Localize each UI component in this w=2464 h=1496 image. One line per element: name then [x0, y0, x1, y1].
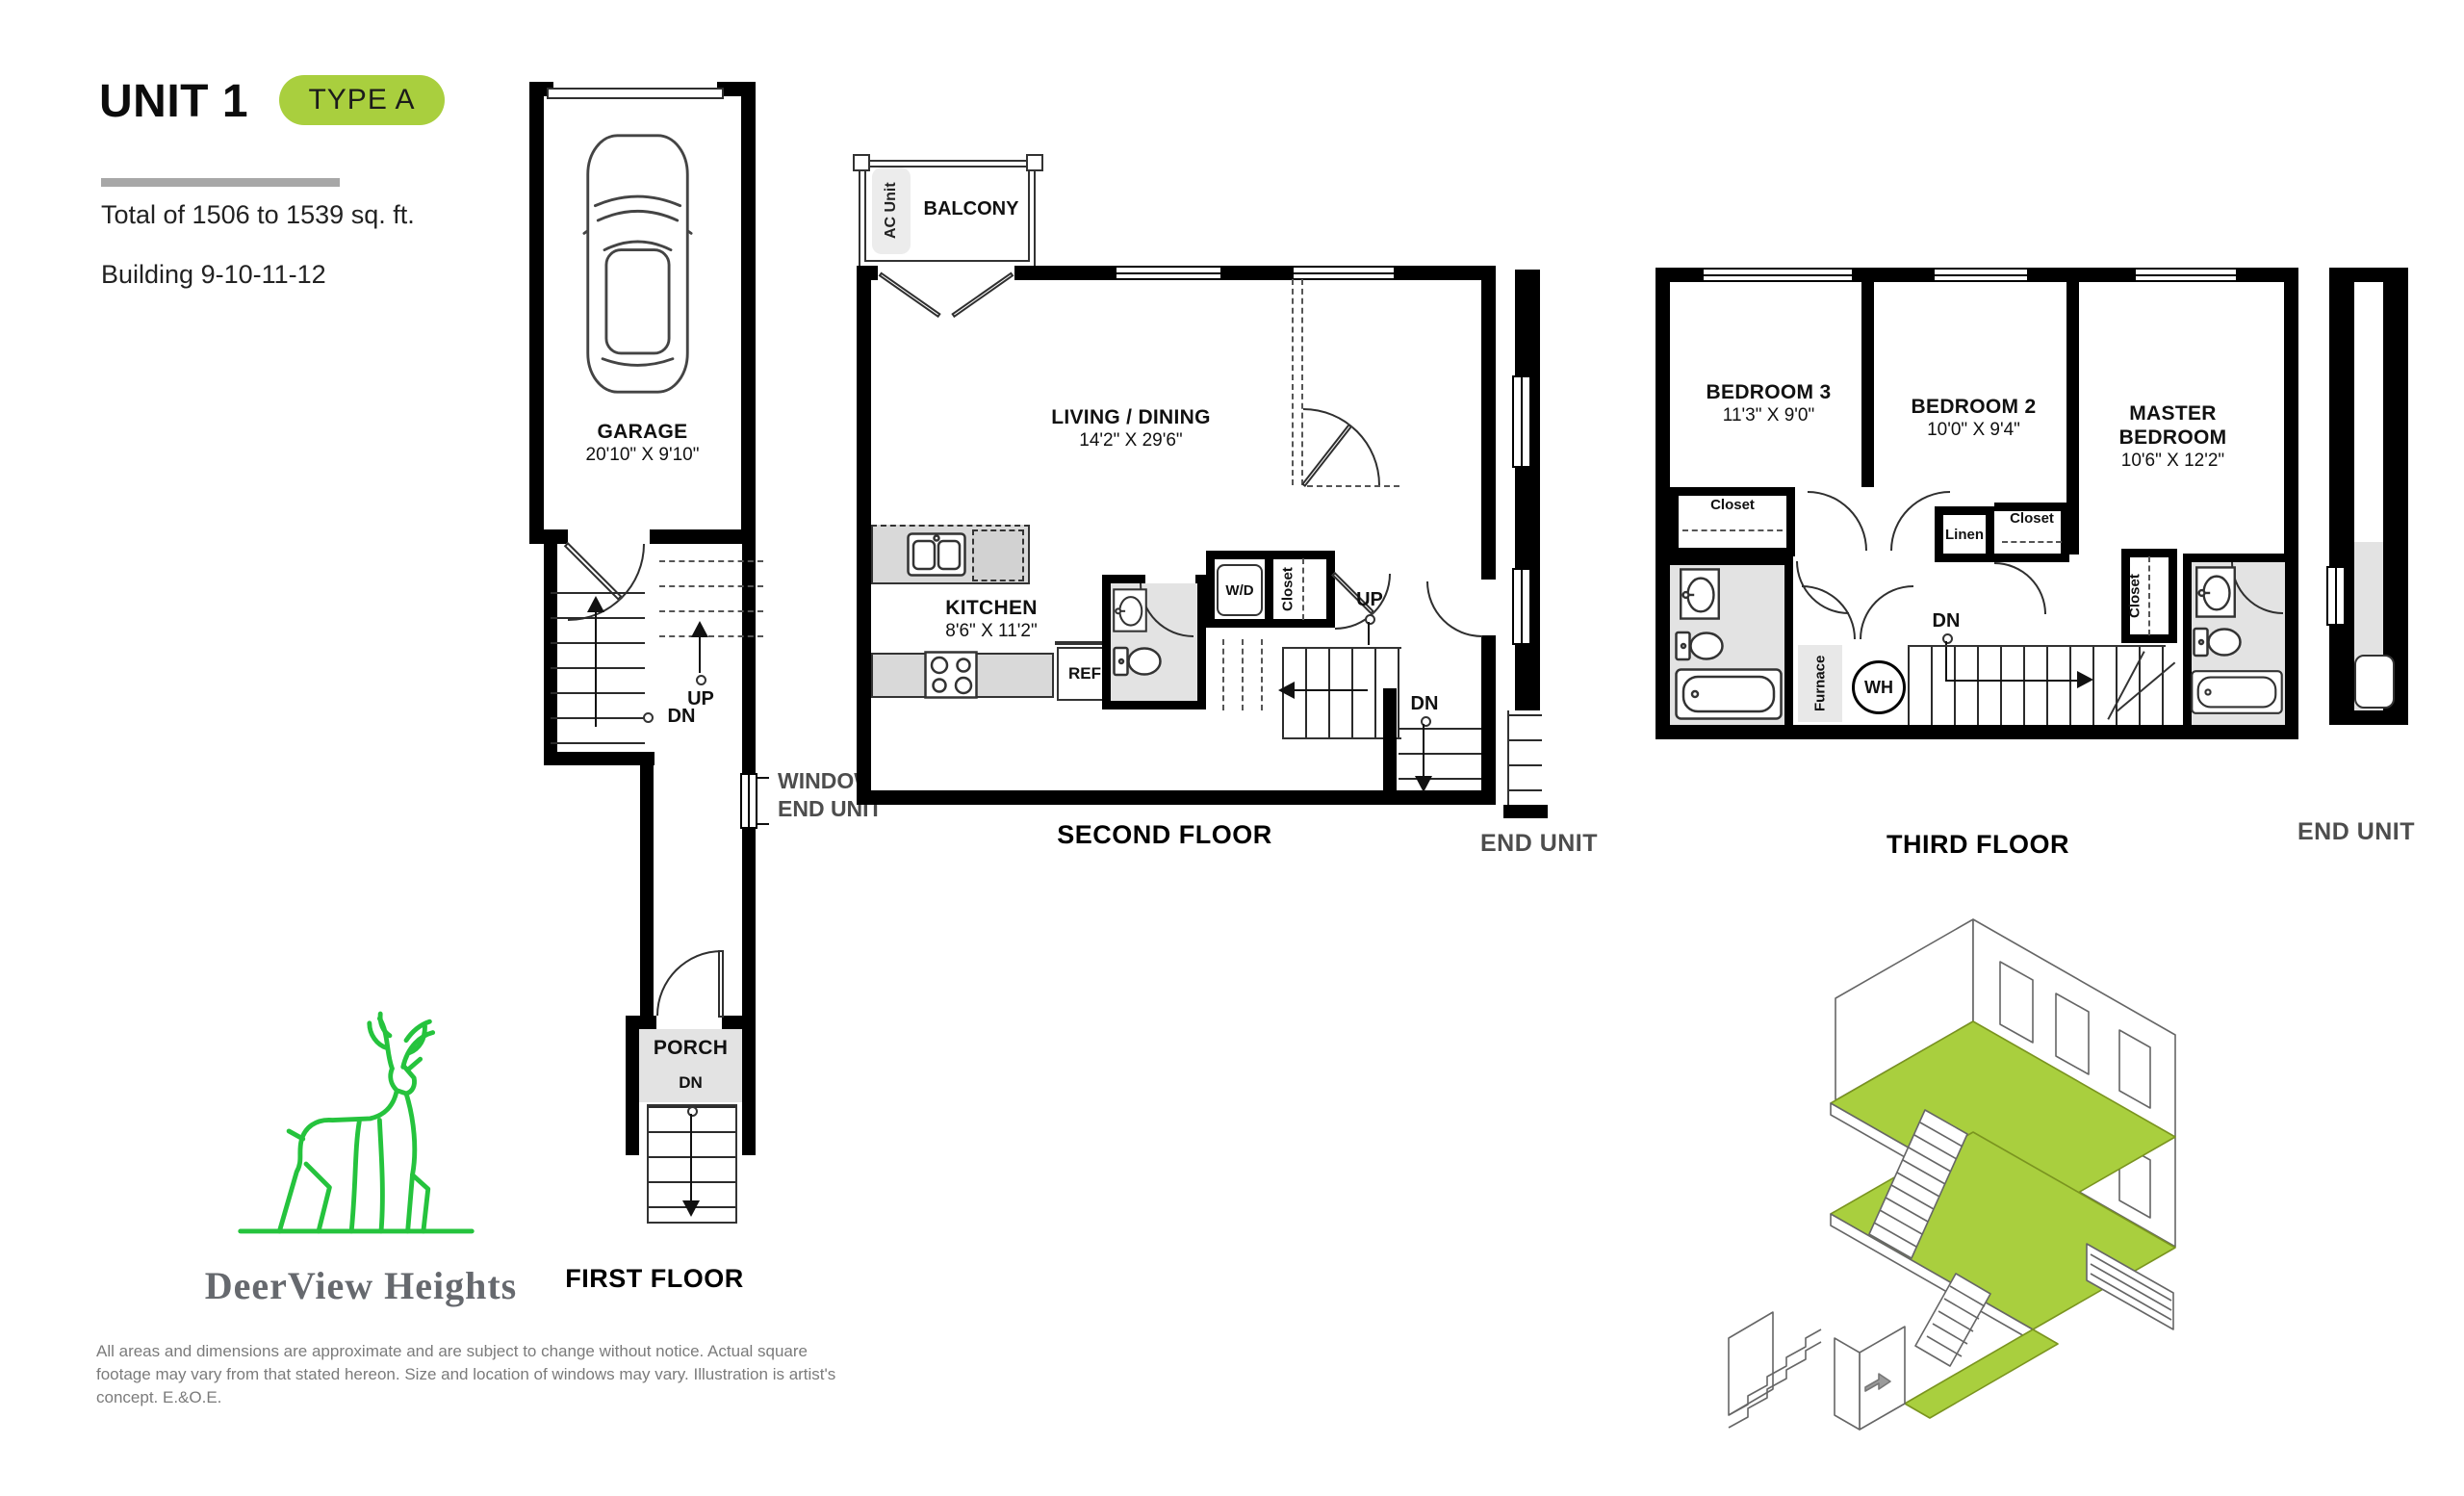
end-unit-label: END UNIT [2260, 818, 2452, 847]
stair-dot [1942, 633, 1953, 644]
third-floor-title: THIRD FLOOR [1757, 830, 2199, 861]
kitchen-name: KITCHEN [881, 597, 1102, 621]
bedroom3-label: BEDROOM 3 11'3" X 9'0" [1680, 381, 1858, 426]
bedroom2-label: BEDROOM 2 10'0" X 9'4" [1885, 396, 2063, 441]
furnace-box: Furnace [1798, 645, 1842, 722]
door-opening [1481, 580, 1496, 635]
kitchen-dims: 8'6" X 11'2" [881, 621, 1102, 642]
dashed-stair-line [659, 585, 763, 587]
up-arrow [691, 621, 708, 637]
second-floor-title: SECOND FLOOR [934, 820, 1396, 851]
closet-rod-dashed [1302, 558, 1304, 620]
stair-dot [696, 675, 706, 685]
end-unit-label: END UNIT [1448, 830, 1630, 859]
floorplan-sheet: UNIT 1 TYPE A Total of 1506 to 1539 sq. … [0, 0, 2464, 1496]
stair-dot [1365, 614, 1375, 625]
dashed-stair-line [659, 635, 763, 637]
end-unit-stairs [1507, 710, 1542, 805]
stair-arrow-stem [1368, 622, 1370, 645]
window-icon [2326, 566, 2346, 626]
closet-rod-dashed [2002, 541, 2062, 543]
closet-label: Closet [1994, 510, 2069, 528]
window-icon [1512, 568, 1531, 645]
living-dims: 14'2" X 29'6" [1006, 430, 1256, 451]
down-arrow [1415, 776, 1432, 792]
end-unit-wall [2329, 268, 2408, 282]
bathtub-icon [1675, 668, 1783, 720]
end-unit-wall [1503, 805, 1548, 818]
porch-dn-label: DN [626, 1073, 756, 1093]
first-floor-title: FIRST FLOOR [529, 1264, 780, 1295]
sink-icon [1679, 568, 1721, 620]
dashed-stair-line [1261, 639, 1263, 710]
stair-dot [643, 712, 654, 723]
bedroom3-dims: 11'3" X 9'0" [1680, 405, 1858, 426]
window-icon [1512, 375, 1531, 468]
dashed-stair-line [1242, 639, 1244, 710]
window-icon [1115, 266, 1222, 280]
living-name: LIVING / DINING [1006, 406, 1256, 430]
third-floor-plan: BEDROOM 3 11'3" X 9'0" BEDROOM 2 10'0" X… [1655, 268, 2445, 874]
washer-dryer-box: W/D [1217, 564, 1263, 616]
stair-arrow-stem [1295, 689, 1368, 691]
closet-rod-dashed [1682, 529, 1783, 531]
building-text: Building 9-10-11-12 [101, 260, 326, 290]
window-icon [1292, 266, 1396, 280]
wall [626, 1102, 639, 1155]
garage-name: GARAGE [529, 421, 756, 445]
window-icon [1702, 268, 1854, 282]
water-heater-circle: WH [1852, 660, 1906, 714]
up-arrow [587, 596, 604, 612]
stair-arrow-stem [690, 1114, 692, 1204]
porch-label: PORCH [626, 1037, 756, 1061]
sink-icon [2194, 566, 2237, 618]
sink-icon [1113, 587, 1147, 633]
window-tick [757, 777, 769, 779]
toilet-icon [1113, 643, 1163, 680]
balcony-label: BALCONY [911, 198, 1032, 221]
page-title: UNIT 1 TYPE A [99, 75, 445, 128]
bedroom2-name: BEDROOM 2 [1885, 396, 2063, 420]
window-icon [2134, 268, 2238, 282]
car-icon [582, 128, 693, 400]
stove-icon [924, 651, 978, 699]
window-icon [1933, 268, 2029, 282]
dn-label: DN [1394, 693, 1455, 716]
balcony-post [853, 154, 870, 171]
header-divider [101, 178, 340, 187]
closet-label: Closet [1276, 555, 1299, 624]
window-icon [740, 773, 757, 829]
stair-arrow-stem [595, 611, 597, 727]
kitchen-sink-icon [907, 532, 966, 577]
dashed-stair-line [1222, 639, 1224, 710]
dashed-stair-line [659, 560, 763, 562]
stair-arrow-stem [1945, 680, 2080, 682]
master-name: MASTER BEDROOM [2093, 402, 2252, 451]
garage-label: GARAGE 20'10" X 9'10" [529, 421, 756, 466]
stairs-down [1399, 728, 1481, 791]
dn-label: DN [654, 706, 708, 729]
brand-name: DeerView Heights [202, 1263, 520, 1308]
bathtub-icon [2191, 666, 2283, 718]
stair-arrow-stem [699, 636, 701, 673]
down-arrow [682, 1200, 700, 1217]
kitchen-label: KITCHEN 8'6" X 11'2" [881, 597, 1102, 642]
wall [1861, 282, 1874, 487]
dishwasher-dashed-box [972, 529, 1024, 581]
closet-label: Closet [1670, 497, 1795, 514]
isometric-cutaway-illustration [1636, 900, 2310, 1439]
end-unit-tub-partial [2354, 655, 2395, 709]
linen-closet: Linen [1935, 506, 1994, 562]
type-badge: TYPE A [279, 75, 444, 125]
end-unit-wall [2329, 268, 2354, 725]
door-leaf [718, 950, 724, 1018]
end-unit-wall [2329, 710, 2408, 725]
balcony-door-opening [878, 266, 1014, 280]
dashed-wall [1307, 485, 1399, 487]
second-floor-plan: AC Unit BALCONY LIVING / DINING 14'2" X … [857, 154, 1627, 895]
garage-door-to-stairs-opening [568, 529, 650, 544]
right-arrow [2077, 671, 2093, 688]
stair-dot [687, 1106, 698, 1117]
unit-title: UNIT 1 [99, 76, 248, 127]
ac-unit-box: AC Unit [872, 168, 911, 254]
garage-door-icon [547, 88, 724, 99]
closet-label: Closet [2123, 553, 2146, 639]
window-tick [757, 823, 769, 825]
balcony-post [1026, 154, 1043, 171]
closet-rod-dashed [2148, 556, 2150, 635]
deer-logo-icon [231, 996, 481, 1249]
porch-door-opening [656, 1016, 722, 1029]
total-area-text: Total of 1506 to 1539 sq. ft. [101, 200, 415, 230]
living-label: LIVING / DINING 14'2" X 29'6" [1006, 406, 1256, 451]
dashed-stair-line [659, 610, 763, 612]
left-arrow [1278, 682, 1295, 699]
wall [742, 1102, 756, 1155]
wall [544, 752, 654, 765]
master-dims: 10'6" X 12'2" [2093, 451, 2252, 472]
dashed-wall [1292, 279, 1294, 485]
toilet-icon [1675, 628, 1725, 664]
stair-arrow-stem [1423, 724, 1424, 778]
toilet-icon [2193, 624, 2243, 660]
bedroom3-name: BEDROOM 3 [1680, 381, 1858, 405]
dn-label: DN [1917, 610, 1975, 633]
garage-dims: 20'10" X 9'10" [529, 445, 756, 466]
master-bedroom-label: MASTER BEDROOM 10'6" X 12'2" [2093, 402, 2252, 472]
powder-door-opening [1145, 575, 1195, 583]
first-floor-stairs [551, 592, 645, 761]
bedroom2-dims: 10'0" X 9'4" [1885, 420, 2063, 441]
disclaimer-text: All areas and dimensions are approximate… [96, 1340, 861, 1408]
up-label: UP [1343, 589, 1397, 612]
